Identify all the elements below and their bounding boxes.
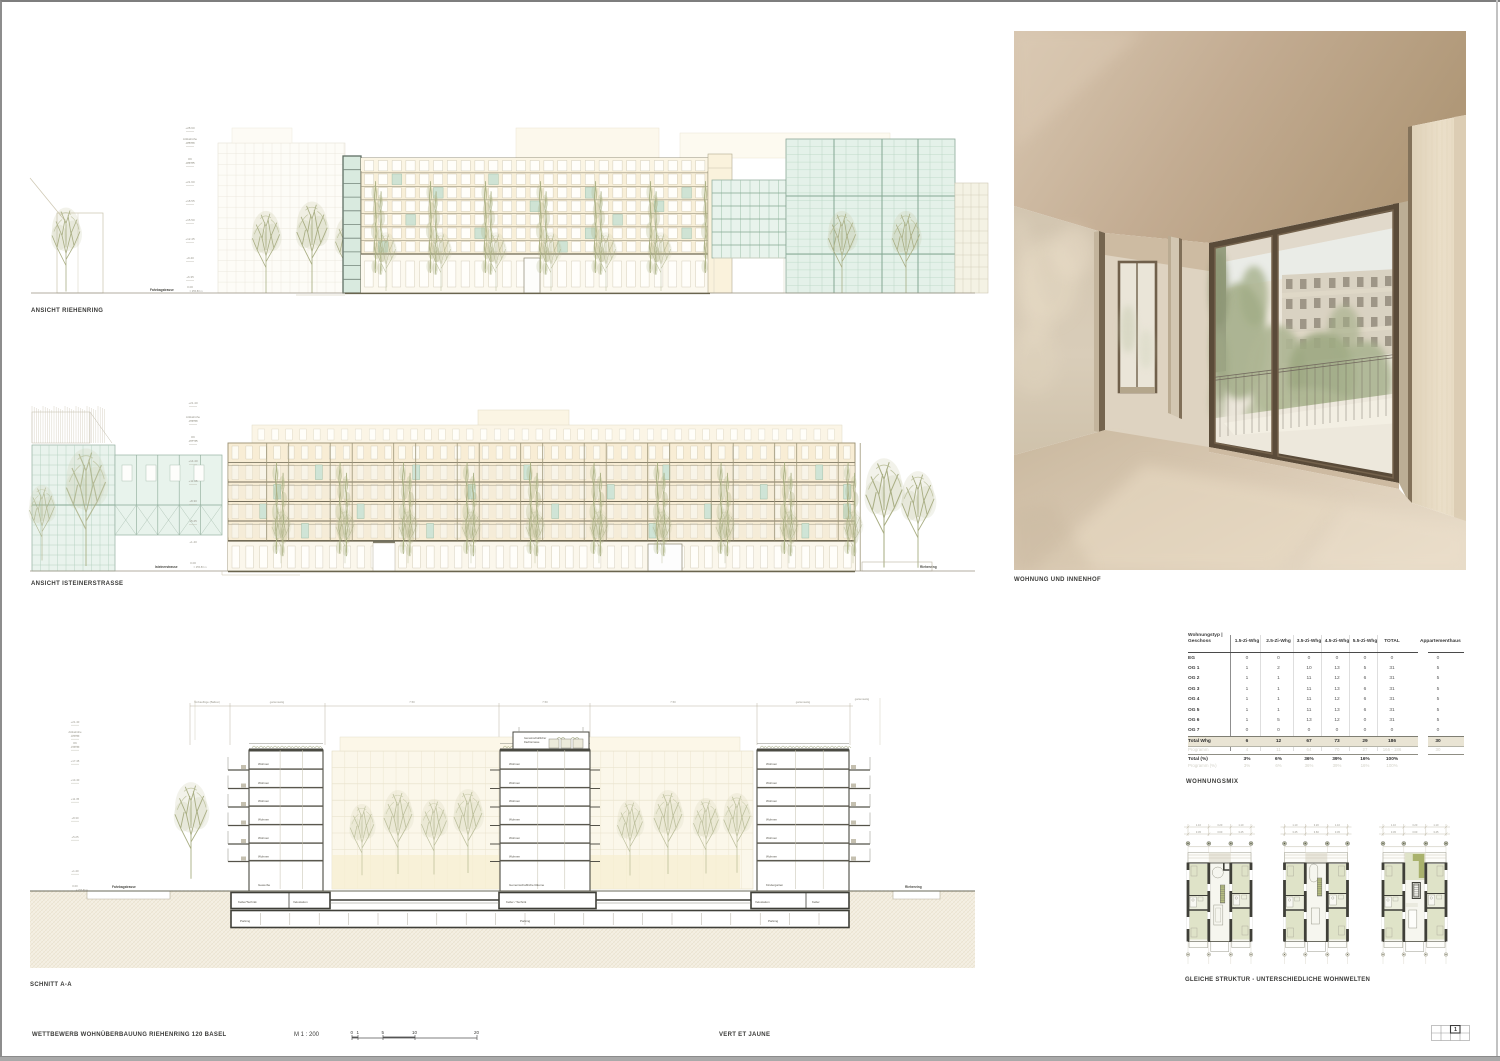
svg-text:7.50: 7.50 [670, 700, 676, 704]
svg-text:+18.55: +18.55 [185, 199, 195, 203]
svg-text:Gemeinschaftliche Räume: Gemeinschaftliche Räume [509, 883, 545, 887]
svg-text:Gewerbe: Gewerbe [258, 883, 271, 887]
svg-text:+1.40: +1.40 [71, 869, 79, 873]
svg-text:Wohnen: Wohnen [766, 781, 777, 785]
svg-text:+26.60: +26.60 [185, 141, 195, 145]
svg-text:Wohnen: Wohnen [258, 818, 269, 822]
svg-text:+24.65: +24.65 [185, 161, 195, 165]
svg-text:= 255.80 m: = 255.80 m [189, 289, 202, 293]
svg-text:1.10: 1.10 [1292, 823, 1298, 827]
svg-text:1.10: 1.10 [1238, 823, 1244, 827]
svg-text:= 255.80 m: = 255.80 m [193, 565, 206, 569]
svg-text:Keller: Keller [812, 900, 820, 904]
svg-text:+17.45: +17.45 [188, 439, 198, 443]
svg-text:+14.40: +14.40 [71, 778, 80, 782]
svg-text:Wohnen: Wohnen [509, 855, 520, 859]
svg-text:Wohnen: Wohnen [258, 836, 269, 840]
svg-text:Wohnen: Wohnen [509, 799, 520, 803]
svg-text:+15.50: +15.50 [185, 218, 195, 222]
svg-text:0: 0 [351, 1030, 354, 1035]
svg-text:Kindergarten: Kindergarten [766, 883, 784, 887]
svg-text:3.45: 3.45 [1433, 830, 1439, 834]
svg-text:1.10: 1.10 [1433, 823, 1439, 827]
svg-text:Wohnen: Wohnen [258, 799, 269, 803]
svg-text:0.00: 0.00 [190, 561, 196, 565]
svg-text:3.60: 3.60 [1217, 830, 1223, 834]
svg-text:3.60: 3.60 [1314, 830, 1320, 834]
svg-text:3.20: 3.20 [1412, 823, 1418, 827]
svg-text:Parking: Parking [520, 919, 531, 923]
svg-text:20: 20 [474, 1030, 480, 1035]
svg-text:Wohnen: Wohnen [766, 818, 777, 822]
svg-text:gartenseitig: gartenseitig [855, 697, 870, 701]
svg-text:3.45: 3.45 [1391, 830, 1397, 834]
svg-text:+19.40: +19.40 [71, 745, 80, 749]
svg-text:Parking: Parking [240, 919, 251, 923]
svg-text:+21.60: +21.60 [185, 180, 195, 184]
svg-text:7.50: 7.50 [409, 700, 415, 704]
svg-text:3.45: 3.45 [1292, 830, 1298, 834]
svg-text:Keller/Technik: Keller/Technik [238, 900, 257, 904]
svg-text:Fahrbagstrasse: Fahrbagstrasse [150, 288, 174, 292]
svg-text:3.45: 3.45 [1196, 830, 1202, 834]
svg-text:+28.60: +28.60 [185, 126, 195, 130]
svg-text:3.45: 3.45 [1238, 830, 1244, 834]
svg-text:+5.25: +5.25 [189, 519, 197, 523]
svg-text:Wohnen: Wohnen [509, 781, 520, 785]
svg-text:Wohnen: Wohnen [258, 762, 269, 766]
svg-text:Fahrbagstrasse: Fahrbagstrasse [112, 885, 136, 889]
svg-text:1: 1 [357, 1030, 360, 1035]
svg-text:3.20: 3.20 [1217, 823, 1223, 827]
svg-text:+6.35: +6.35 [186, 275, 194, 279]
svg-text:1.10: 1.10 [1391, 823, 1397, 827]
svg-text:Keller / Technik: Keller / Technik [506, 900, 527, 904]
svg-text:gartenseitig: gartenseitig [796, 700, 811, 704]
svg-text:3.60: 3.60 [1412, 830, 1418, 834]
svg-text:1.10: 1.10 [1335, 823, 1341, 827]
svg-text:Wohnen: Wohnen [766, 855, 777, 859]
svg-text:Wohnen: Wohnen [509, 818, 520, 822]
svg-text:Wohnen: Wohnen [258, 781, 269, 785]
svg-text:Wohnen: Wohnen [509, 836, 520, 840]
svg-text:1.10: 1.10 [1196, 823, 1202, 827]
svg-text:Wohnen: Wohnen [766, 799, 777, 803]
svg-text:Isteinerstrasse: Isteinerstrasse [155, 565, 178, 569]
svg-text:Wohnen: Wohnen [509, 762, 520, 766]
svg-text:+17.45: +17.45 [71, 759, 80, 763]
svg-text:+21.40: +21.40 [71, 720, 80, 724]
svg-text:Parking: Parking [768, 919, 779, 923]
svg-text:Dachterrasse: Dachterrasse [524, 740, 540, 744]
svg-text:+8.30: +8.30 [71, 816, 79, 820]
svg-text:gartenseitig: gartenseitig [270, 700, 285, 704]
svg-text:+14.40: +14.40 [188, 459, 198, 463]
svg-text:Wohnen: Wohnen [258, 855, 269, 859]
svg-text:Riehenring: Riehenring [920, 565, 937, 569]
svg-text:+12.45: +12.45 [185, 237, 195, 241]
svg-text:Velostation: Velostation [293, 900, 308, 904]
svg-text:+19.90: +19.90 [188, 419, 198, 423]
svg-text:10: 10 [412, 1030, 418, 1035]
svg-text:+5.25: +5.25 [71, 835, 79, 839]
svg-text:0.00: 0.00 [72, 884, 78, 888]
svg-text:5: 5 [382, 1030, 385, 1035]
svg-text:+9.40: +9.40 [186, 256, 194, 260]
svg-text:+8.30: +8.30 [189, 499, 197, 503]
svg-text:7.50: 7.50 [542, 700, 548, 704]
svg-text:+21.40: +21.40 [188, 401, 198, 405]
svg-text:+11.35: +11.35 [71, 797, 80, 801]
svg-text:+1.40: +1.40 [189, 540, 197, 544]
svg-text:1: 1 [1454, 1027, 1457, 1033]
svg-text:Riehenring: Riehenring [905, 885, 922, 889]
svg-text:+20.90: +20.90 [71, 734, 80, 738]
svg-text:3.45: 3.45 [1335, 830, 1341, 834]
svg-text:3.20: 3.20 [1314, 823, 1320, 827]
svg-text:Velostation: Velostation [755, 900, 770, 904]
svg-text:0.00: 0.00 [187, 285, 193, 289]
svg-text:+11.35: +11.35 [188, 479, 197, 483]
svg-text:Wohnen: Wohnen [766, 762, 777, 766]
svg-text:Gemeinschaftlicher: Gemeinschaftlicher [524, 736, 546, 740]
svg-text:Vorbauflüge (Balkon): Vorbauflüge (Balkon) [194, 700, 220, 704]
svg-text:Wohnen: Wohnen [766, 836, 777, 840]
